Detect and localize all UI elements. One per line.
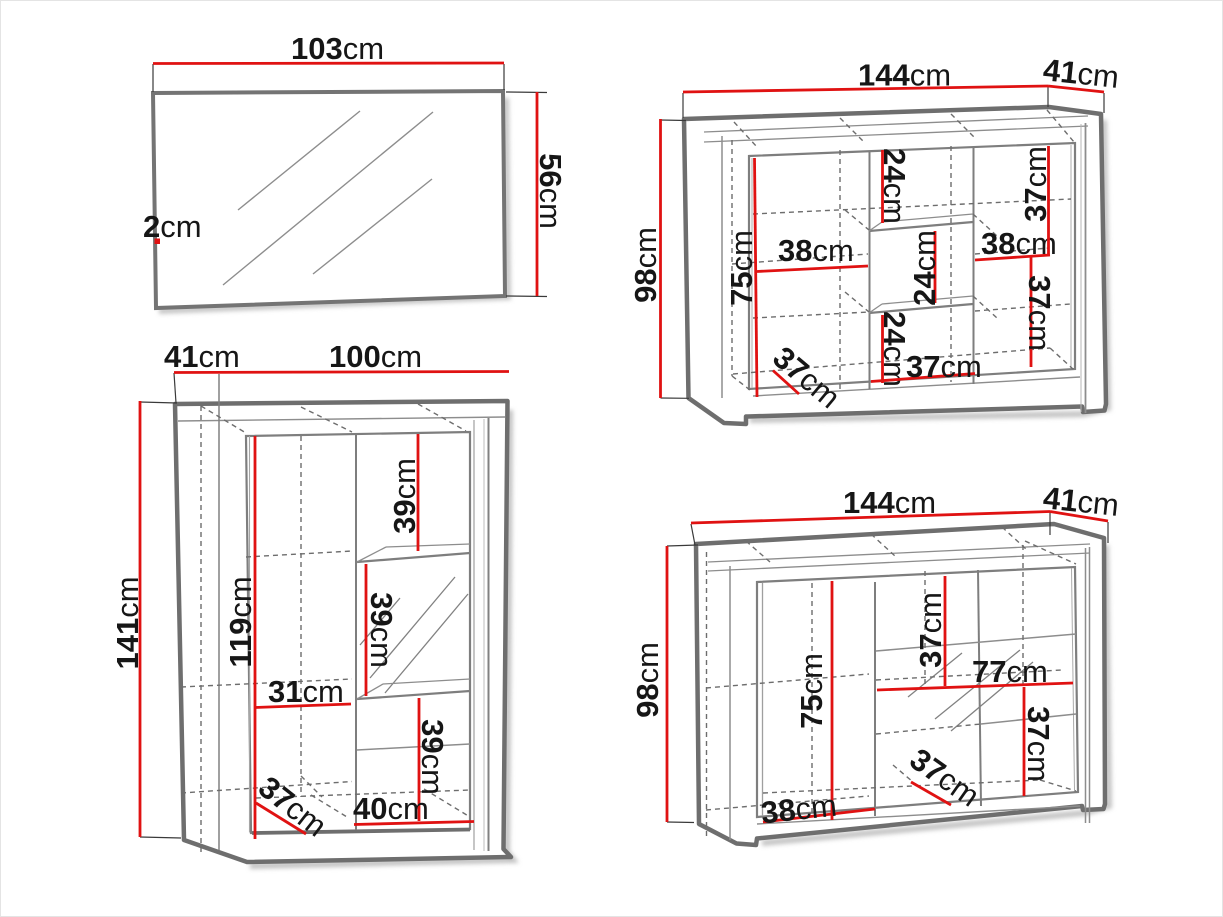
svg-text:98cm: 98cm — [630, 642, 665, 718]
svg-text:31cm: 31cm — [268, 674, 344, 709]
svg-text:40cm: 40cm — [353, 791, 429, 826]
svg-text:37cm: 37cm — [906, 349, 982, 384]
svg-text:2cm: 2cm — [143, 209, 202, 244]
svg-text:75cm: 75cm — [724, 230, 759, 306]
svg-text:39cm: 39cm — [387, 458, 422, 534]
svg-text:100cm: 100cm — [329, 339, 422, 374]
svg-text:119cm: 119cm — [223, 576, 258, 667]
svg-text:37cm: 37cm — [913, 592, 948, 668]
svg-text:56cm: 56cm — [533, 153, 568, 229]
svg-text:77cm: 77cm — [972, 654, 1048, 689]
svg-text:37cm: 37cm — [1022, 275, 1057, 351]
svg-text:103cm: 103cm — [291, 31, 384, 66]
svg-text:39cm: 39cm — [415, 719, 450, 795]
svg-text:141cm: 141cm — [110, 576, 145, 669]
svg-text:37cm: 37cm — [1021, 706, 1056, 782]
svg-text:24cm: 24cm — [907, 230, 942, 306]
svg-text:98cm: 98cm — [628, 227, 663, 303]
svg-text:38cm: 38cm — [778, 233, 854, 268]
svg-text:144cm: 144cm — [843, 485, 936, 520]
svg-text:24cm: 24cm — [877, 148, 912, 224]
svg-text:37cm: 37cm — [1018, 146, 1053, 222]
svg-text:38cm: 38cm — [981, 226, 1057, 261]
svg-text:39cm: 39cm — [364, 592, 399, 668]
svg-text:144cm: 144cm — [858, 58, 951, 93]
svg-text:41cm: 41cm — [164, 339, 240, 374]
svg-text:75cm: 75cm — [794, 653, 829, 729]
